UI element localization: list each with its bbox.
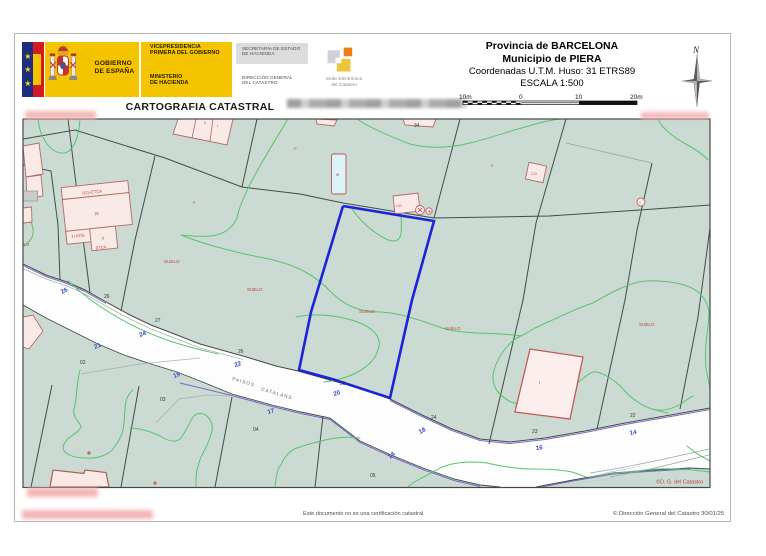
svg-text:P: P <box>491 163 494 168</box>
svg-text:P: P <box>193 200 196 205</box>
svg-text:34: 34 <box>414 123 420 129</box>
svg-text:SUELO: SUELO <box>359 309 375 314</box>
svg-text:24: 24 <box>431 415 437 421</box>
svg-text:05: 05 <box>370 473 376 479</box>
svg-text:I: I <box>217 124 218 128</box>
svg-text:16: 16 <box>535 444 543 452</box>
svg-text:SUELO: SUELO <box>639 322 655 327</box>
svg-text:23: 23 <box>532 429 538 435</box>
svg-text:04: 04 <box>253 427 259 433</box>
svg-text:II: II <box>204 121 206 125</box>
svg-text:M: M <box>336 173 339 177</box>
svg-text:26: 26 <box>104 294 110 300</box>
svg-text:P: P <box>294 146 297 151</box>
svg-text:02: 02 <box>80 360 86 366</box>
svg-text:22: 22 <box>630 413 636 419</box>
svg-text:SUELO: SUELO <box>247 287 263 292</box>
svg-text:I: I <box>640 201 641 205</box>
svg-text:25: 25 <box>340 381 346 387</box>
svg-text:I: I <box>539 380 540 385</box>
svg-text:26: 26 <box>238 349 244 355</box>
svg-text:CO: CO <box>396 204 402 208</box>
svg-text:SUELO: SUELO <box>445 326 461 331</box>
svg-text:SUELO: SUELO <box>164 259 180 264</box>
svg-text:©D. G. del Catastro: ©D. G. del Catastro <box>656 479 703 486</box>
svg-text:03: 03 <box>160 397 166 403</box>
svg-text:LO: LO <box>24 242 30 247</box>
svg-text:CO: CO <box>531 172 537 176</box>
svg-text:27: 27 <box>155 318 161 324</box>
